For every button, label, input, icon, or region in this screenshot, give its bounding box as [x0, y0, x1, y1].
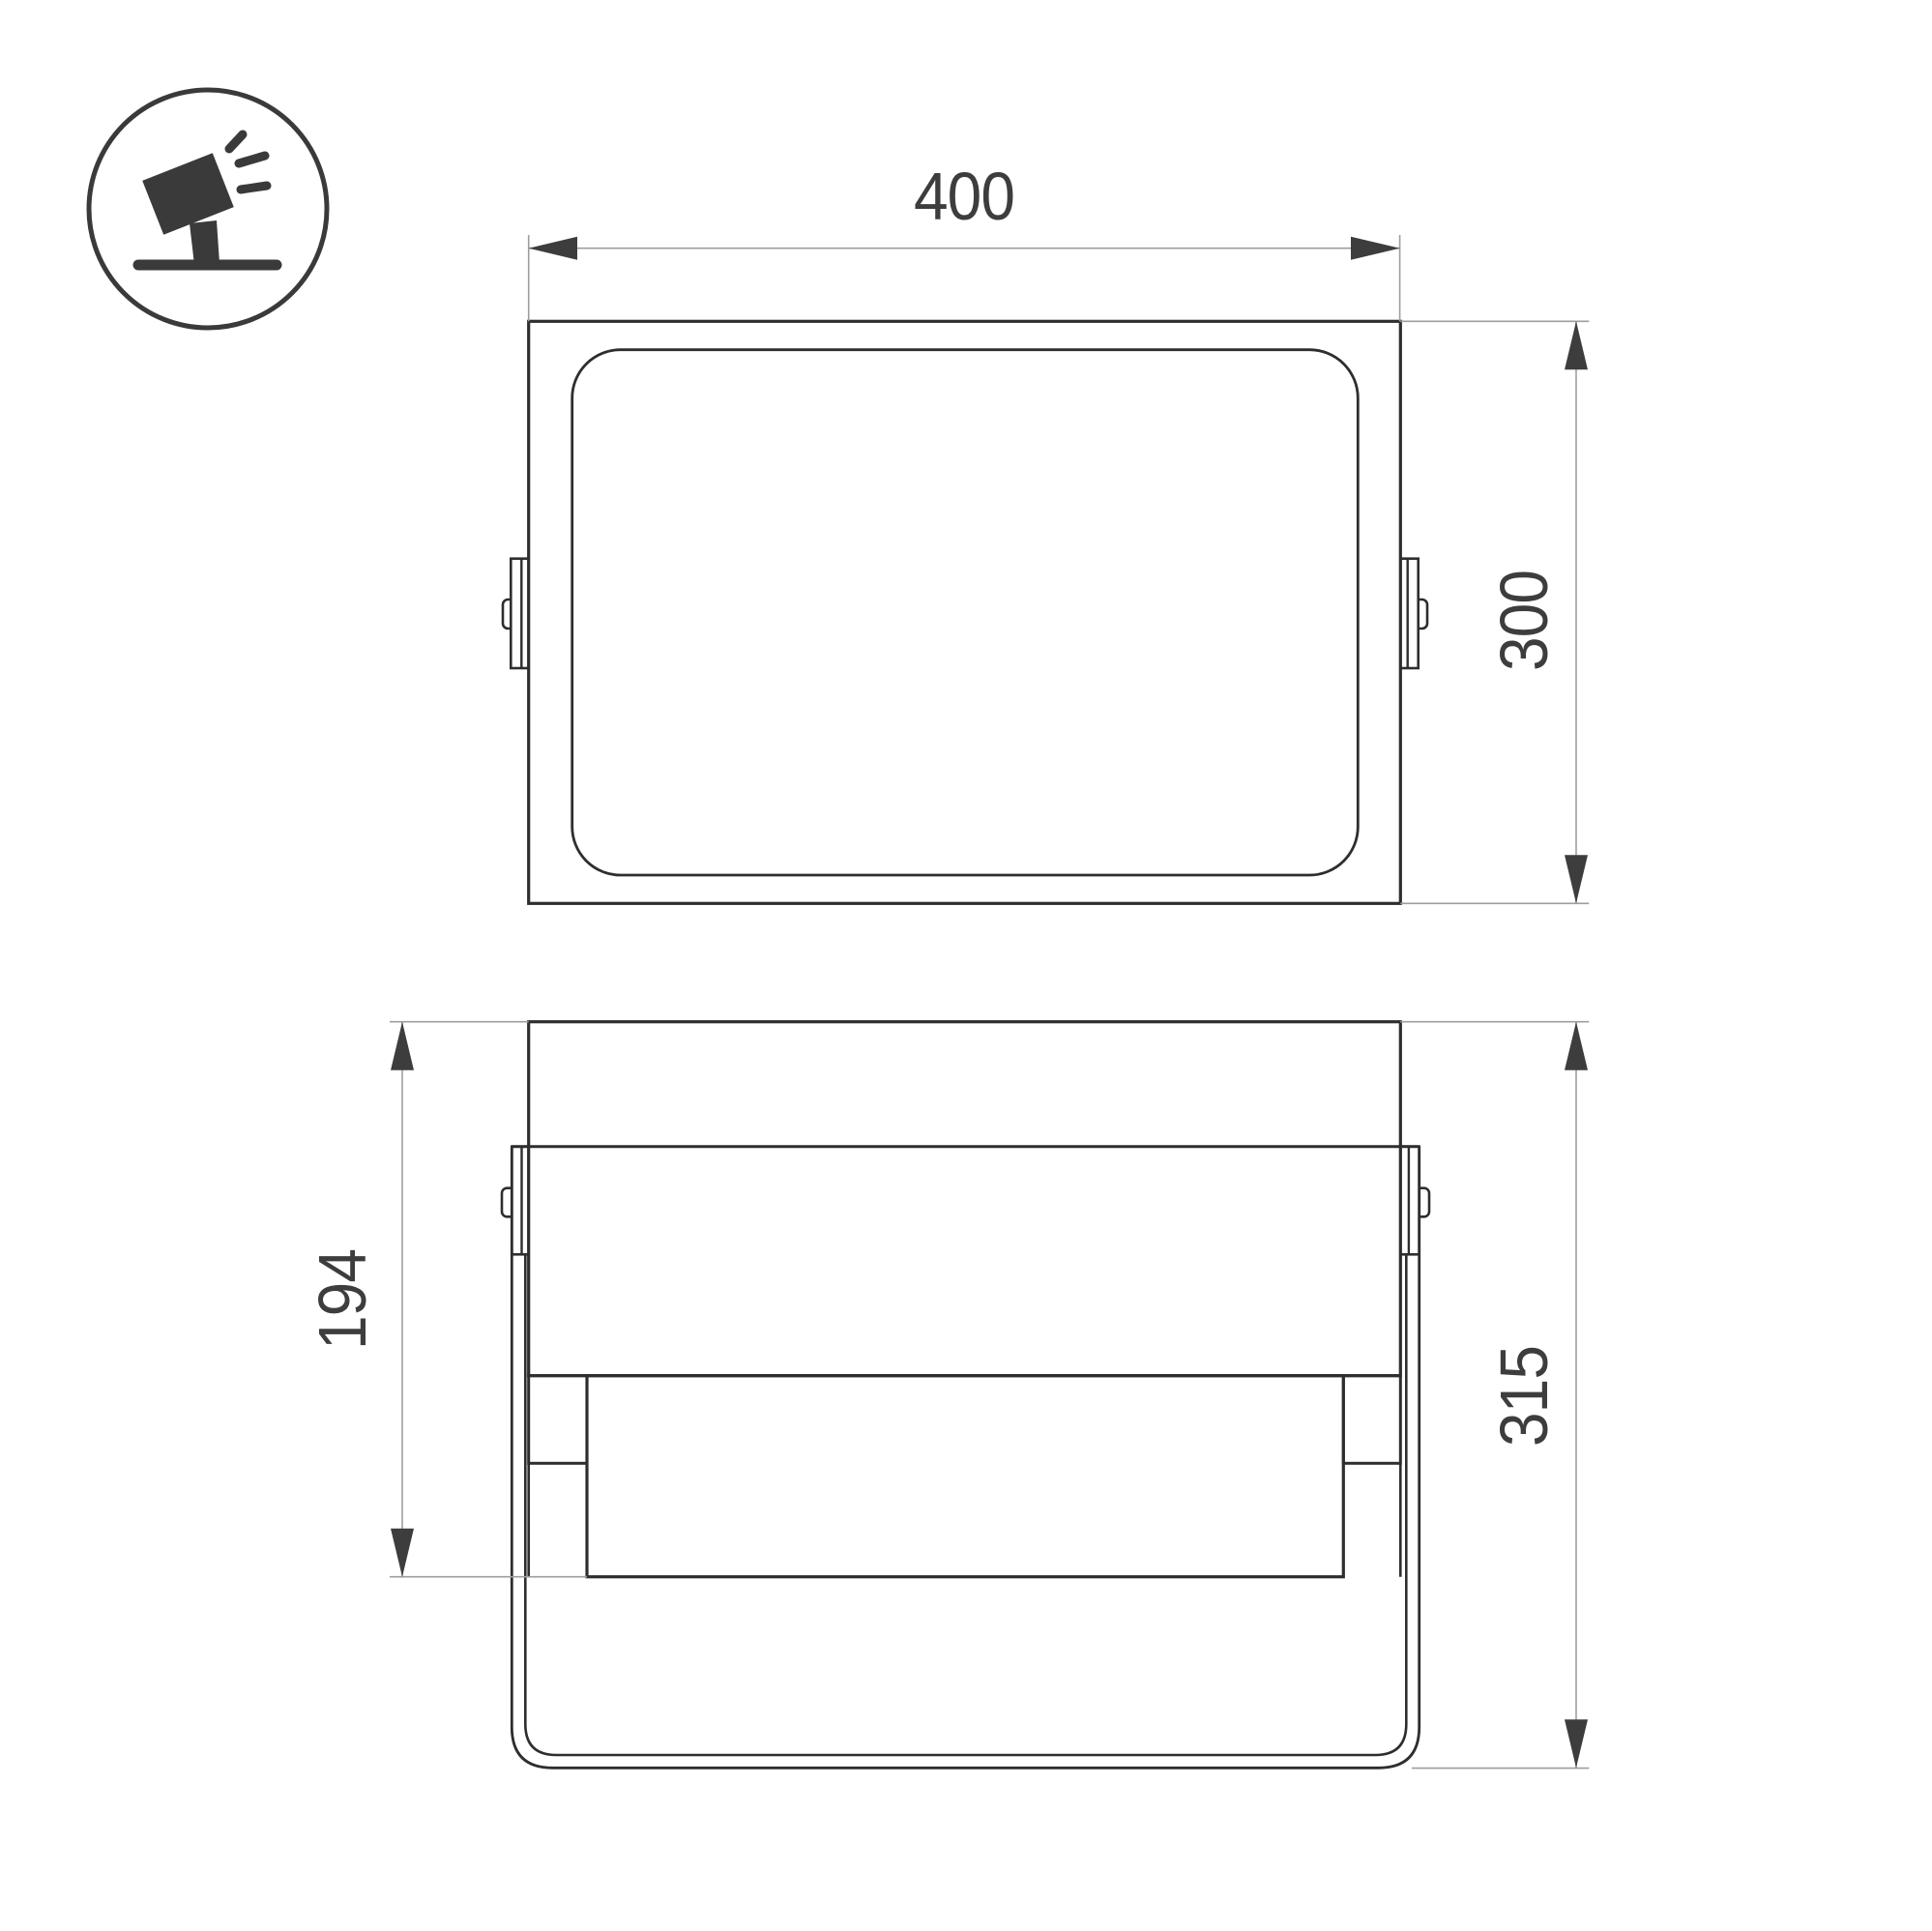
dim-side-total-arrow-bottom: [1565, 1719, 1588, 1768]
front-left-pivot: [503, 559, 529, 668]
front-right-pivot-knob: [1419, 600, 1427, 629]
dim-side-total-label: 315: [1486, 1346, 1562, 1447]
icon-lamp-post: [190, 220, 220, 265]
icon-light-ray-2: [239, 156, 265, 163]
side-right-collar: [1343, 1376, 1400, 1464]
icon-light-ray-1: [229, 134, 243, 149]
side-left-pivot-plate: [512, 1147, 528, 1255]
side-left-pivot: [502, 1147, 529, 1255]
dim-side-body-arrow-bottom: [391, 1529, 414, 1577]
side-right-pivot: [1400, 1147, 1429, 1255]
dim-side-body-height: 194: [305, 1022, 587, 1577]
dim-front-width: 400: [529, 159, 1400, 321]
icon-light-ray-3: [241, 186, 267, 190]
dim-side-total-height: 315: [1400, 1022, 1589, 1769]
side-view: [502, 1022, 1429, 1769]
icon-lamp-head: [142, 153, 234, 234]
front-lens-outline: [572, 350, 1359, 875]
dim-side-body-label: 194: [305, 1249, 380, 1350]
side-body-outline: [529, 1022, 1401, 1376]
side-yoke-inner: [525, 1254, 1406, 1755]
front-housing-outline: [529, 321, 1401, 903]
floodlight-icon: [89, 90, 327, 328]
front-right-pivot: [1400, 559, 1427, 668]
floodlight-dimension-drawing: 400 300: [0, 0, 1932, 1931]
dim-front-height: 300: [1400, 321, 1589, 903]
side-left-collar: [529, 1376, 587, 1464]
dim-front-height-arrow-bottom: [1565, 855, 1588, 903]
side-lens-plate: [587, 1376, 1343, 1577]
front-left-pivot-plate: [511, 559, 528, 668]
dim-front-width-arrow-left: [529, 237, 577, 260]
dim-front-height-label: 300: [1486, 571, 1562, 671]
dim-side-body-arrow-top: [391, 1022, 414, 1070]
side-right-pivot-knob: [1420, 1188, 1429, 1217]
front-right-pivot-plate: [1400, 559, 1418, 668]
front-view: [503, 321, 1427, 903]
dim-front-height-arrow-top: [1565, 321, 1588, 369]
dim-side-total-arrow-top: [1565, 1022, 1588, 1070]
dim-front-width-label: 400: [914, 159, 1014, 234]
dim-front-width-arrow-right: [1351, 237, 1400, 260]
side-yoke-outer: [512, 1147, 1419, 1769]
side-left-pivot-knob: [502, 1188, 512, 1217]
